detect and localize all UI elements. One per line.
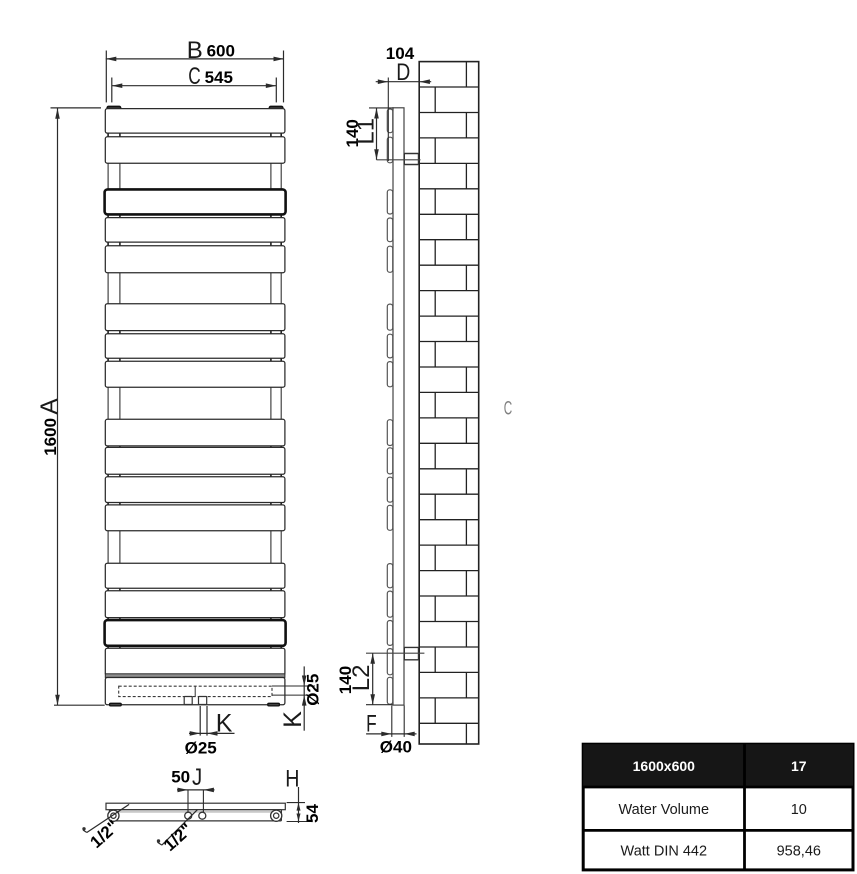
svg-text:Water Volume: Water Volume (619, 802, 710, 818)
svg-text:54: 54 (303, 804, 322, 823)
svg-text:F: F (366, 711, 377, 737)
svg-text:1600x600: 1600x600 (633, 758, 696, 774)
svg-text:K: K (279, 711, 307, 728)
svg-text:Ø25: Ø25 (304, 674, 323, 706)
svg-text:Ø40: Ø40 (380, 738, 412, 757)
svg-text:50: 50 (171, 767, 190, 786)
svg-text:K: K (216, 709, 233, 737)
svg-text:600: 600 (207, 42, 235, 61)
svg-text:L2: L2 (348, 664, 375, 691)
svg-text:B: B (187, 37, 203, 64)
svg-text:A: A (36, 398, 63, 414)
svg-text:C: C (504, 397, 512, 419)
svg-text:1/2": 1/2" (160, 820, 196, 855)
svg-text:Ø25: Ø25 (185, 739, 217, 758)
svg-text:D: D (396, 58, 410, 85)
svg-text:958,46: 958,46 (777, 843, 821, 859)
svg-text:J: J (192, 763, 202, 790)
svg-text:H: H (285, 765, 299, 792)
svg-text:1600: 1600 (41, 418, 60, 456)
svg-text:C: C (188, 64, 200, 90)
svg-text:1/2": 1/2" (86, 817, 122, 852)
svg-text:10: 10 (791, 802, 807, 818)
svg-text:545: 545 (205, 68, 233, 87)
svg-text:L1: L1 (352, 118, 379, 145)
svg-text:17: 17 (791, 758, 807, 774)
svg-text:Watt DIN 442: Watt DIN 442 (621, 843, 708, 859)
